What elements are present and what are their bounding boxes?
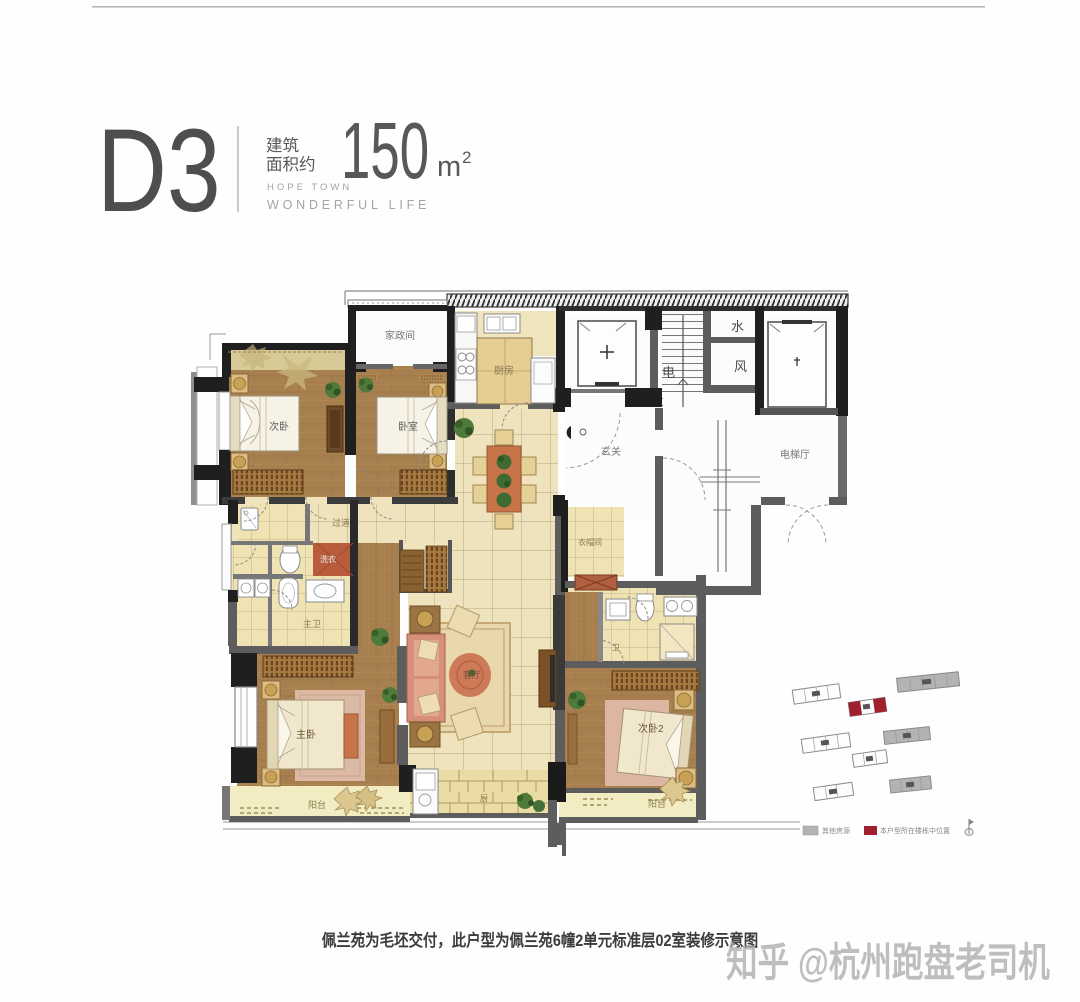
svg-text:HOPE TOWN: HOPE TOWN (267, 182, 352, 193)
svg-text:次卧2: 次卧2 (638, 722, 664, 735)
svg-text:次卧: 次卧 (269, 420, 289, 433)
svg-text:阳台: 阳台 (648, 798, 666, 809)
svg-text:电梯厅: 电梯厅 (780, 448, 810, 461)
svg-text:厨房: 厨房 (494, 364, 514, 377)
svg-text:建筑: 建筑 (266, 136, 300, 155)
svg-text:150: 150 (341, 107, 429, 196)
svg-text:水: 水 (731, 319, 744, 334)
svg-text:电: 电 (662, 365, 675, 380)
svg-text:2: 2 (462, 148, 471, 167)
svg-text:WONDERFUL LIFE: WONDERFUL LIFE (267, 198, 430, 212)
svg-text:佩兰苑为毛坯交付，此户型为佩兰苑6幢2单元标准层02室装修示: 佩兰苑为毛坯交付，此户型为佩兰苑6幢2单元标准层02室装修示意图 (322, 930, 758, 950)
svg-text:洗衣: 洗衣 (320, 554, 336, 564)
svg-text:过道: 过道 (332, 517, 350, 528)
svg-text:风: 风 (734, 359, 747, 374)
svg-text:厨: 厨 (480, 794, 488, 803)
svg-text:主卧: 主卧 (296, 728, 316, 741)
svg-text:客厅: 客厅 (463, 669, 481, 680)
svg-text:面积约: 面积约 (266, 155, 316, 174)
svg-text:m: m (437, 151, 461, 183)
svg-text:衣帽间: 衣帽间 (578, 537, 602, 547)
svg-text:其他房源: 其他房源 (822, 826, 850, 835)
svg-text:家政间: 家政间 (385, 329, 415, 342)
svg-text:阳台: 阳台 (308, 799, 326, 810)
svg-text:玄关: 玄关 (601, 445, 621, 458)
svg-text:知乎 @杭州跑盘老司机: 知乎 @杭州跑盘老司机 (726, 939, 1050, 984)
svg-text:D3: D3 (97, 104, 221, 236)
svg-text:卧室: 卧室 (398, 420, 418, 433)
svg-text:本户型所在楼栋中位置: 本户型所在楼栋中位置 (880, 826, 950, 835)
svg-text:主卫: 主卫 (303, 618, 321, 629)
